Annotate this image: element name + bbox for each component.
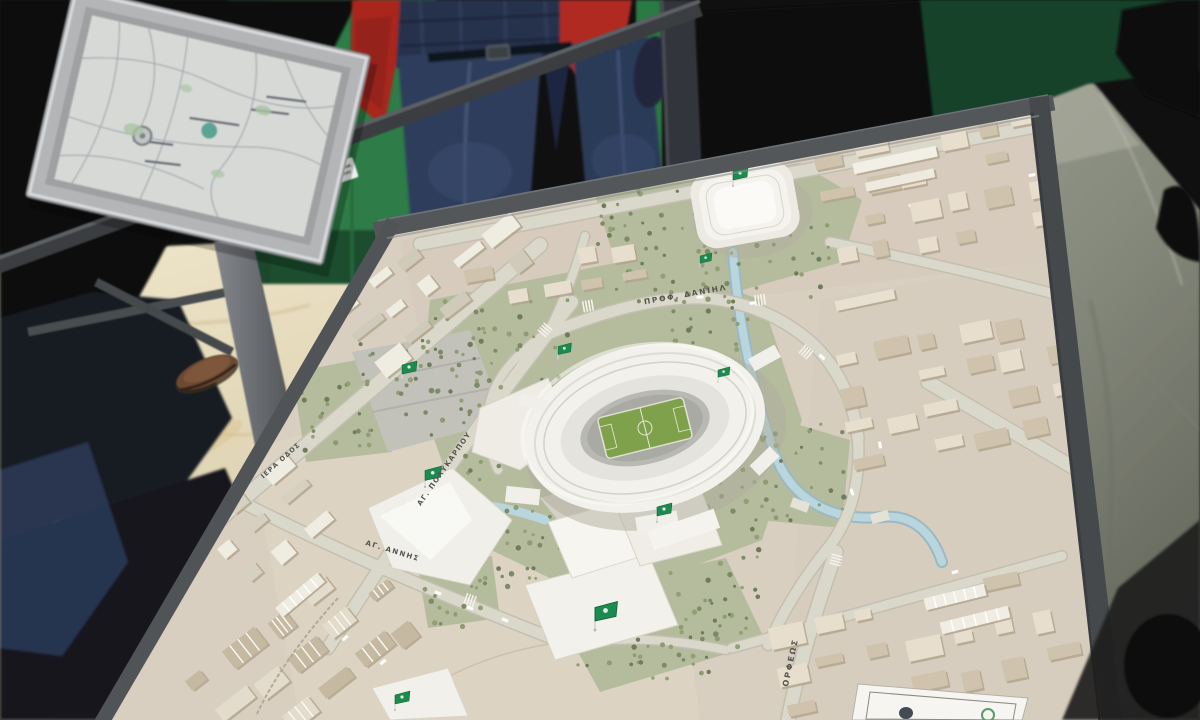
tree [669,645,674,650]
tree [689,317,692,320]
tree [682,300,686,304]
tree [774,485,778,489]
tree [800,446,803,449]
tree [768,260,772,264]
tree [481,327,485,331]
tree [478,478,482,482]
tree [734,342,738,346]
tree [497,464,502,469]
tree [676,592,681,597]
tree [565,332,570,337]
tree [654,246,658,250]
tree [737,262,741,266]
tree [825,223,829,227]
tree [541,536,544,539]
tree [524,332,529,337]
tree [425,350,429,354]
tree [827,256,831,260]
tree [809,295,813,299]
tree [754,518,757,521]
tree [346,381,351,386]
tree [735,322,739,326]
tree [730,508,735,513]
tree [713,631,719,637]
plate-logo-dark [899,707,913,719]
tree [718,624,721,627]
building [872,239,890,258]
tree [443,299,448,304]
tree [474,310,479,315]
tree [734,347,739,352]
tree [427,362,432,367]
tree [705,578,710,583]
tree [681,227,684,230]
tree [368,429,372,433]
tree [789,518,793,522]
tree [723,615,727,619]
tree [679,625,684,630]
tree [677,653,682,658]
tree [700,637,705,642]
tree [483,581,487,585]
tree [429,388,435,394]
tree [659,213,664,218]
tree [641,222,644,225]
tree [436,389,441,394]
tree [818,503,821,506]
tree [600,215,603,218]
tree [710,602,713,605]
tree [461,353,464,356]
tree [419,364,423,368]
tree [514,505,519,510]
tree [631,644,636,649]
tree [480,308,484,312]
tree [760,505,764,509]
tree [701,631,704,634]
tree [359,342,363,346]
tree [696,249,701,254]
tree [523,530,527,534]
tree [358,412,361,415]
tree [651,676,654,679]
tree [337,385,342,390]
tree [794,271,798,275]
tree [671,328,675,332]
tree [841,470,845,474]
tree [691,341,694,344]
tree [421,339,424,342]
tree [663,254,666,257]
tree [746,317,750,321]
tree [462,421,465,424]
tree [731,300,735,304]
tree [423,410,428,415]
tree [479,339,484,344]
tree [730,306,734,310]
tree [471,336,475,340]
tree [680,630,684,634]
tree [819,461,823,465]
tree [421,345,426,350]
tree [405,383,409,387]
tree [475,586,478,589]
tree [723,295,726,298]
tree [596,242,600,246]
tree [662,227,666,231]
tree [774,515,779,520]
tree [528,576,531,579]
tree [459,399,463,403]
tree [478,605,483,610]
tree [715,266,720,271]
tree [691,654,696,659]
tree [809,226,813,230]
tree [438,606,442,610]
tree [647,231,652,236]
tree [610,215,614,219]
tree [705,656,708,659]
tree [493,349,497,353]
tree [318,414,323,419]
tree [662,663,667,668]
tree [576,663,579,666]
tree [771,508,775,512]
tree [460,624,465,629]
tree [750,527,755,532]
tree [439,622,442,625]
tree [713,619,717,623]
tree [639,660,644,665]
tree [490,362,493,365]
tree [705,297,710,302]
tree [534,577,537,580]
tree [470,585,473,588]
tree [477,327,481,331]
tree [607,660,612,665]
tree [324,397,329,402]
tree [501,575,504,578]
tree [607,233,612,238]
tree [660,274,665,279]
tree [756,595,761,600]
tree [527,540,532,545]
tree [515,348,519,352]
tree [709,330,712,333]
tree [671,309,675,313]
tree [692,663,695,666]
tree [818,284,823,289]
tree [699,671,704,676]
tree [744,627,747,630]
tree [333,440,338,445]
tree [665,677,669,681]
tree [764,497,769,502]
tree [653,288,657,292]
tree [669,571,673,575]
tree [371,352,375,356]
tree [457,363,462,368]
building [961,669,983,692]
tree [682,658,686,662]
tree [706,308,711,313]
tree [753,588,757,592]
tree [461,604,466,609]
tree [718,561,723,566]
tree [365,380,370,385]
tree [408,377,413,382]
tree [505,541,509,545]
building [578,246,597,264]
tree [686,327,691,332]
tree [756,547,761,552]
tree [779,459,783,463]
tree [739,631,743,635]
tree [744,499,749,504]
tree [517,314,522,319]
tree [517,343,522,348]
tree [723,597,727,601]
tree [532,533,535,536]
tree [733,585,736,588]
tree [704,271,708,275]
tree [624,236,629,241]
tree [367,443,372,448]
tree [819,423,822,426]
tree [312,429,316,433]
tree [807,429,811,433]
tree [487,378,492,383]
tree [439,355,443,359]
tree [505,584,510,589]
tree [310,425,314,429]
tree [608,227,612,231]
tree [450,367,455,372]
tree [841,508,844,511]
tree [684,618,687,621]
tree [755,286,759,290]
tree [707,670,711,674]
tree [467,409,472,414]
tree [689,635,693,639]
tree [356,429,361,434]
tree [799,272,803,276]
tree [531,510,534,513]
tree [703,599,707,603]
tree [735,644,740,649]
tree [763,480,768,485]
tree [548,515,552,519]
tree [426,340,430,344]
tree [731,317,736,322]
building [948,191,969,211]
tree [811,252,814,255]
tree [399,391,404,396]
tree [566,298,570,302]
tree [600,221,605,226]
tree [647,645,650,648]
tree [473,357,476,360]
tree [434,317,437,320]
tree [636,638,640,642]
tree [538,543,543,548]
tree [715,636,720,641]
tree [629,212,633,216]
tree [302,398,307,403]
tree [499,385,504,390]
tree [820,447,824,451]
tree [741,556,745,560]
tree [477,403,481,407]
tree [361,373,364,376]
tree [644,247,648,251]
tree [829,488,834,493]
tree [791,256,795,260]
tree [840,430,844,434]
tree [660,642,665,647]
tree [629,663,633,667]
tree [448,389,452,393]
tree [311,435,315,439]
tree [455,375,458,378]
tree [615,288,618,291]
tree [483,331,486,334]
tree [459,407,463,411]
tree [633,653,637,657]
tree [585,664,588,667]
tree [623,224,626,227]
tree [433,594,437,598]
tree [516,545,521,550]
tree [434,348,437,351]
photo-architectural-model-scene: ΙΕΡΑ ΟΔΟΣ ΑΓ. ΠΟΛΥΚΑΡΠΟΥ ΑΓ. ΑΝΝΗΣ ΠΡΟΦ.… [0,0,1200,720]
tree [785,514,789,518]
tree [478,579,482,583]
tree [404,412,408,416]
tree [697,606,702,611]
tree [468,342,473,347]
tree [532,566,536,570]
tree [366,433,371,438]
tree [326,402,330,406]
tree [438,350,443,355]
tree [395,377,399,381]
tree [708,599,712,603]
tree [532,335,535,338]
tree [727,300,732,305]
tree [474,382,480,388]
tree [463,454,468,459]
tree [429,599,434,604]
tree [468,468,473,473]
tree [827,246,830,249]
tree [445,610,449,614]
tree [756,556,759,559]
tree [638,655,643,660]
tree [358,444,361,447]
tree [440,418,445,423]
tree [671,280,675,284]
tree [496,566,501,571]
scene-svg: ΙΕΡΑ ΟΔΟΣ ΑΓ. ΠΟΛΥΚΑΡΠΟΥ ΑΓ. ΑΝΝΗΣ ΠΡΟΦ.… [0,0,1200,720]
tree [727,572,732,577]
tree [676,190,679,193]
tree [616,203,619,206]
tree [477,370,482,375]
tree [509,571,515,577]
tree [414,377,418,381]
tree [602,203,607,208]
tree [553,346,557,350]
tree [505,509,510,514]
tree [640,262,644,266]
tree [492,326,497,331]
tree [728,613,731,616]
tree [483,576,488,581]
tree [423,587,428,592]
tree [637,299,641,303]
tree [794,452,797,455]
tree [455,350,459,354]
tree [430,433,433,436]
tree [740,586,743,589]
tree [526,567,530,571]
tree [816,257,821,262]
tree [841,494,846,499]
tree [303,448,308,453]
tree [507,331,512,336]
tree [754,535,759,540]
tree [432,620,437,625]
tree [692,609,697,614]
tree [479,460,483,464]
tree [454,612,458,616]
tree [810,486,813,489]
tree [745,617,748,620]
